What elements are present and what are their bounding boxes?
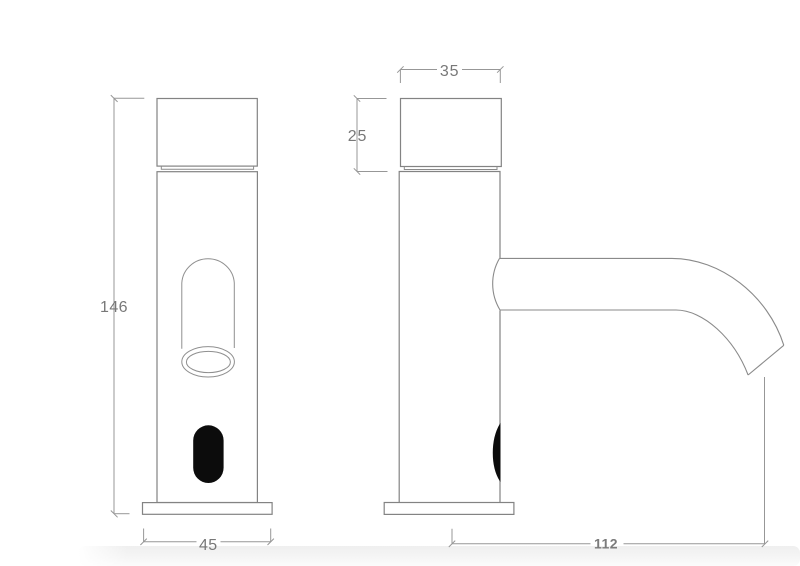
svg-text:112: 112 xyxy=(594,536,618,552)
svg-text:45: 45 xyxy=(199,537,218,554)
svg-text:35: 35 xyxy=(440,63,459,80)
svg-text:146: 146 xyxy=(100,299,128,316)
svg-text:25: 25 xyxy=(348,128,367,145)
